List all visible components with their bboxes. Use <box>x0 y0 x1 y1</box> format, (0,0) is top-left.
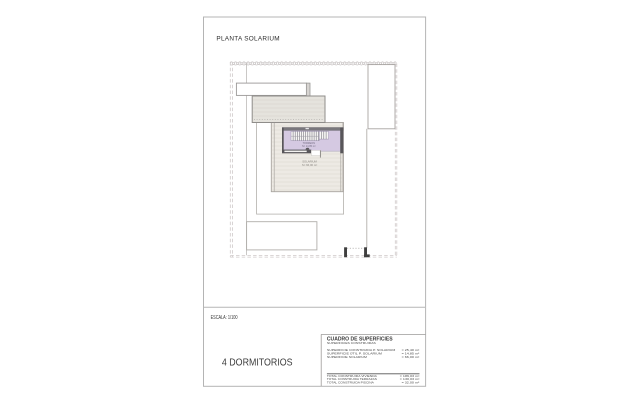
svg-text:4 DORMITORIOS: 4 DORMITORIOS <box>222 358 293 369</box>
svg-text:ESCALA: 1/100: ESCALA: 1/100 <box>211 315 238 321</box>
svg-text:= 32,00 m²: = 32,00 m² <box>402 380 420 384</box>
svg-text:= 66,00 m²: = 66,00 m² <box>402 355 420 359</box>
svg-text:TOTAL CONSTRUIDA PISCINA: TOTAL CONSTRUIDA PISCINA <box>327 380 375 384</box>
svg-text:SUPERFICIE SOLARIUM: SUPERFICIE SOLARIUM <box>327 355 367 359</box>
svg-text:SUPERFICIES CONSTRUIDAS: SUPERFICIES CONSTRUIDAS <box>327 341 376 345</box>
svg-text:PLANTA SOLARIUM: PLANTA SOLARIUM <box>216 35 279 42</box>
svg-text:S= 14,85 m²: S= 14,85 m² <box>302 145 316 148</box>
svg-text:S= 66,00 m²: S= 66,00 m² <box>302 163 317 167</box>
